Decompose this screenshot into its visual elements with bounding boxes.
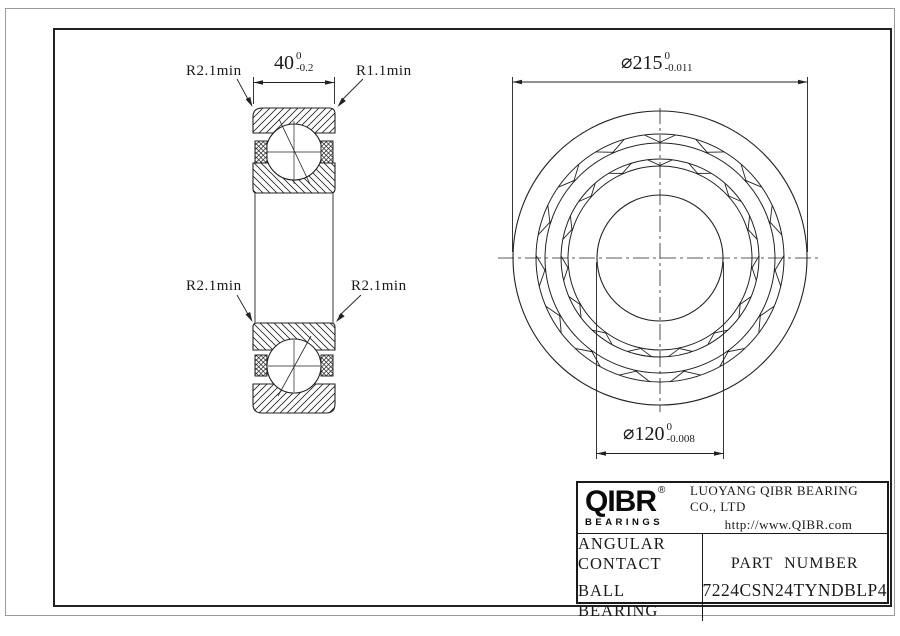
- width-dim-tol-upper: 0: [296, 51, 313, 63]
- product-type-line1: ANGULAR CONTACT: [578, 534, 702, 574]
- radius-label-top-left: R2.1min: [186, 63, 242, 80]
- company-name: LUOYANG QIBR BEARING CO., LTD: [690, 483, 887, 515]
- company-logo: QIBR ® BEARINGS: [578, 488, 690, 529]
- brand-text: QIBR: [585, 488, 656, 517]
- radius-label-mid-left: R2.1min: [186, 278, 242, 295]
- title-block: QIBR ® BEARINGS LUOYANG QIBR BEARING CO.…: [576, 481, 889, 604]
- outer-dia-value: 215: [632, 53, 662, 73]
- width-dimension-label: 40 0 -0.2: [274, 53, 313, 74]
- bore-lines: [255, 193, 333, 323]
- bore-diameter-label: ⌀ 120 0 -0.008: [623, 424, 695, 445]
- title-block-lower-row: ANGULAR CONTACT BALL BEARING PART NUMBER…: [578, 534, 887, 621]
- radius-label-mid-right: R2.1min: [351, 278, 407, 295]
- outer-dia-tol-upper: 0: [664, 51, 692, 63]
- diameter-symbol: ⌀: [621, 53, 632, 72]
- title-block-header-row: QIBR ® BEARINGS LUOYANG QIBR BEARING CO.…: [578, 483, 887, 534]
- bore-dia-tol-upper: 0: [666, 422, 694, 434]
- width-dim-tol-lower: -0.2: [296, 63, 313, 75]
- registered-trademark-icon: ®: [658, 486, 664, 517]
- diameter-symbol: ⌀: [623, 424, 634, 443]
- radius-label-top-right: R1.1min: [356, 63, 412, 80]
- width-dimension: [254, 77, 335, 104]
- part-number-value: 7224CSN24TYNDBLP4: [703, 580, 888, 601]
- outer-diameter-label: ⌀ 215 0 -0.011: [621, 53, 692, 74]
- product-type-cell: ANGULAR CONTACT BALL BEARING: [578, 534, 703, 621]
- section-top-half: [253, 108, 335, 193]
- outer-dia-tol-lower: -0.011: [664, 63, 692, 75]
- product-type-line2: BALL BEARING: [578, 581, 702, 621]
- width-dim-value: 40: [274, 53, 294, 73]
- bore-dia-tol-lower: -0.008: [666, 434, 694, 446]
- bore-dia-value: 120: [634, 424, 664, 444]
- logo-wordmark: QIBR ®: [585, 488, 664, 517]
- front-view: [498, 77, 822, 459]
- company-website: http://www.QIBR.com: [725, 517, 853, 533]
- section-bottom-half: [253, 323, 335, 413]
- section-view: [237, 77, 363, 413]
- part-number-cell: PART NUMBER 7224CSN24TYNDBLP4: [703, 534, 888, 621]
- company-info: LUOYANG QIBR BEARING CO., LTD http://www…: [690, 483, 887, 533]
- part-number-label: PART NUMBER: [731, 555, 859, 573]
- logo-subtitle: BEARINGS: [585, 517, 663, 528]
